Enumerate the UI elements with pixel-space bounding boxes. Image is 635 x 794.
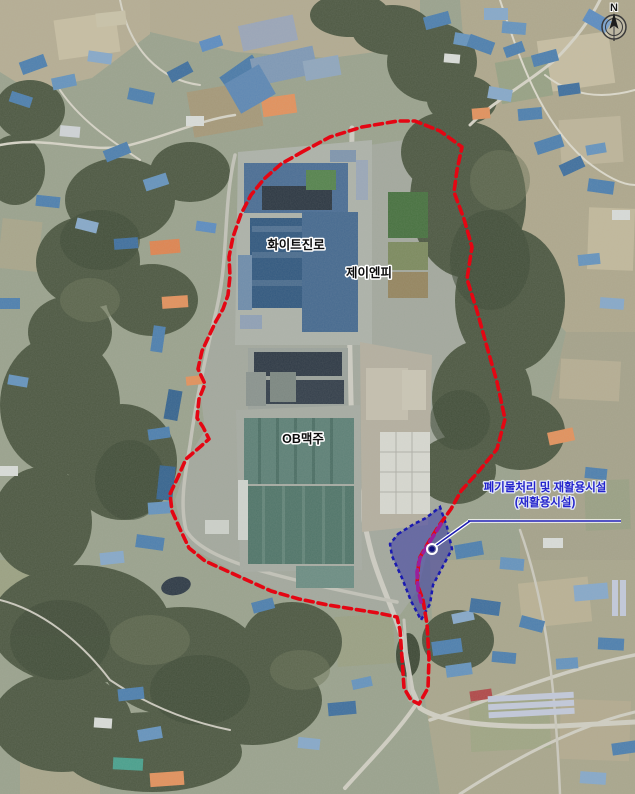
aerial-map-view: N 화이트진로 제이엔피 OB맥주 폐기물처리 및 재활용시설 (재활용시설) <box>0 0 635 794</box>
annotation-line2: (재활용시설) <box>515 495 576 509</box>
annotation-line1: 폐기물처리 및 재활용시설 <box>484 480 607 494</box>
satellite-map-image: N 화이트진로 제이엔피 OB맥주 폐기물처리 및 재활용시설 (재활용시설) <box>0 0 635 794</box>
site-marker-dot <box>429 546 435 552</box>
photo-texture <box>0 0 635 794</box>
label-jnp: 제이엔피 <box>346 265 392 280</box>
label-hitejinro: 화이트진로 <box>267 237 325 252</box>
north-label: N <box>610 2 618 14</box>
label-ob-beer: OB맥주 <box>282 431 324 446</box>
